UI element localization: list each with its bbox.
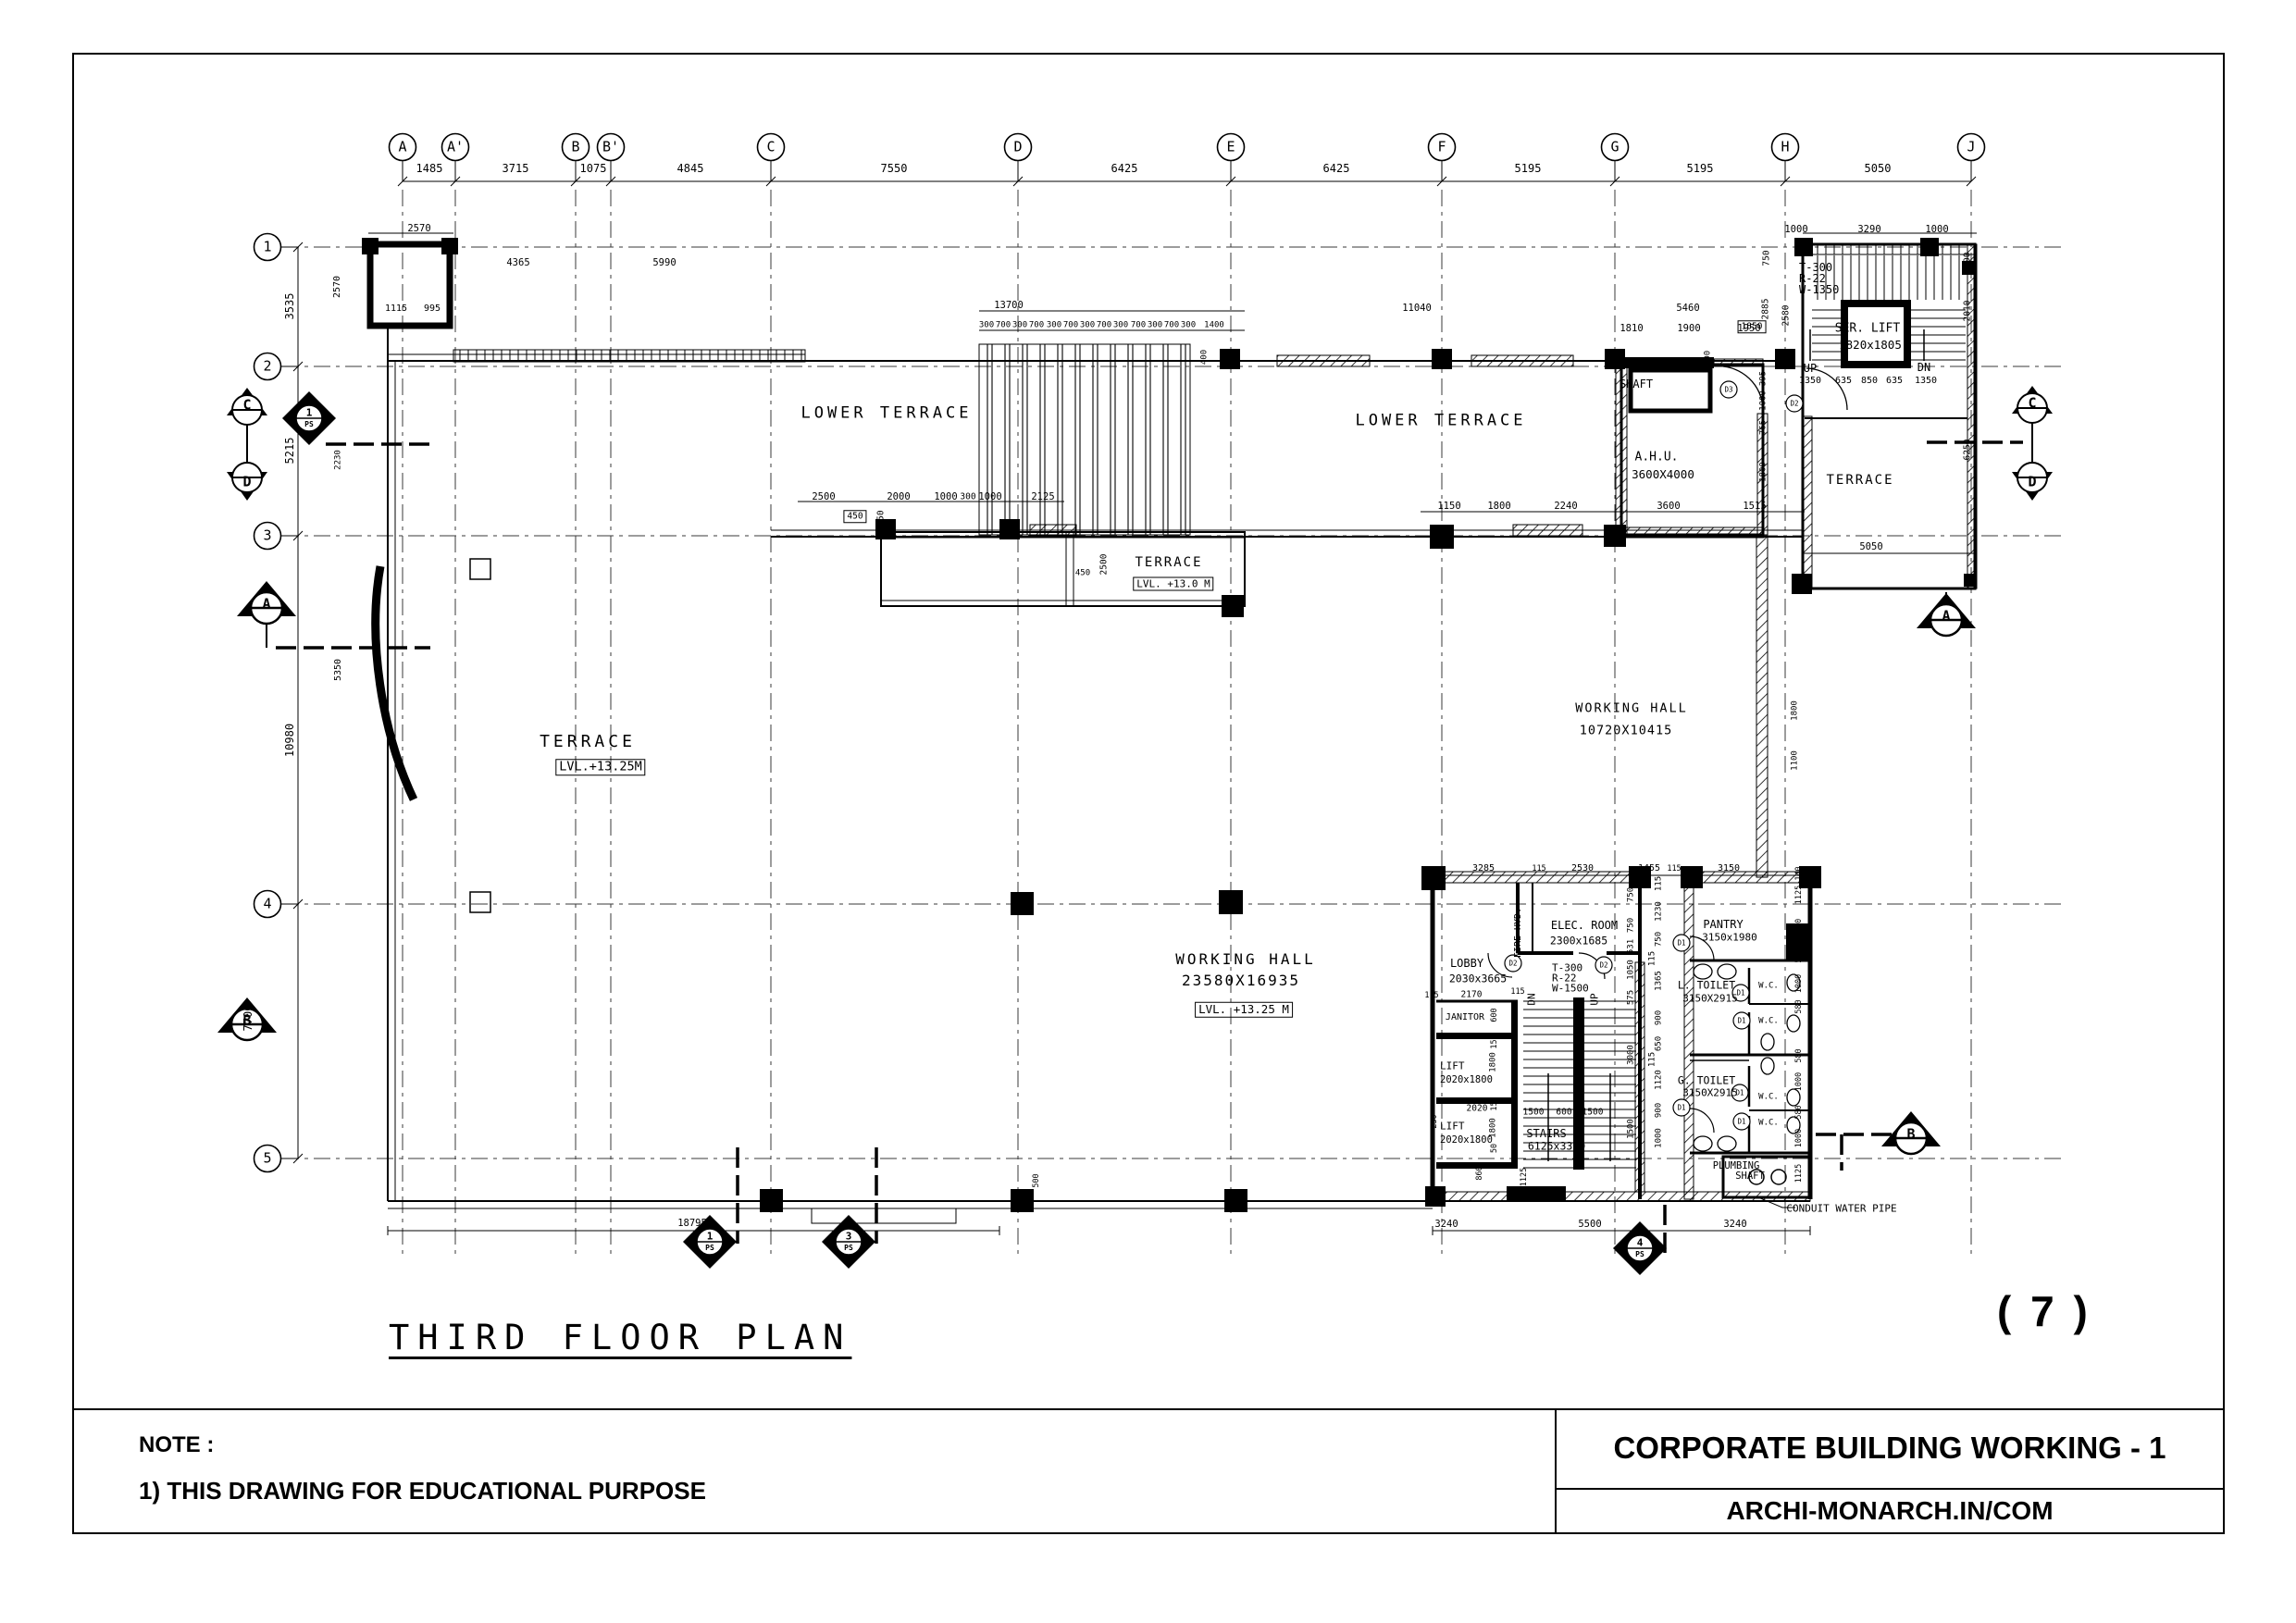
page-number: ( 7 ) — [1997, 1286, 2091, 1336]
drawing-sheet: AA'BB'CDEFGHJ148537151075484575506425642… — [0, 0, 2296, 1623]
title-block-project: CORPORATE BUILDING WORKING - 1 — [1555, 1408, 2225, 1488]
note-heading: NOTE : — [139, 1432, 214, 1458]
plan-title: THIRD FLOOR PLAN — [389, 1318, 851, 1357]
note-line: 1) THIS DRAWING FOR EDUCATIONAL PURPOSE — [139, 1477, 706, 1505]
sheet-border — [72, 53, 2225, 1534]
title-block-source: ARCHI-MONARCH.IN/COM — [1555, 1488, 2225, 1534]
